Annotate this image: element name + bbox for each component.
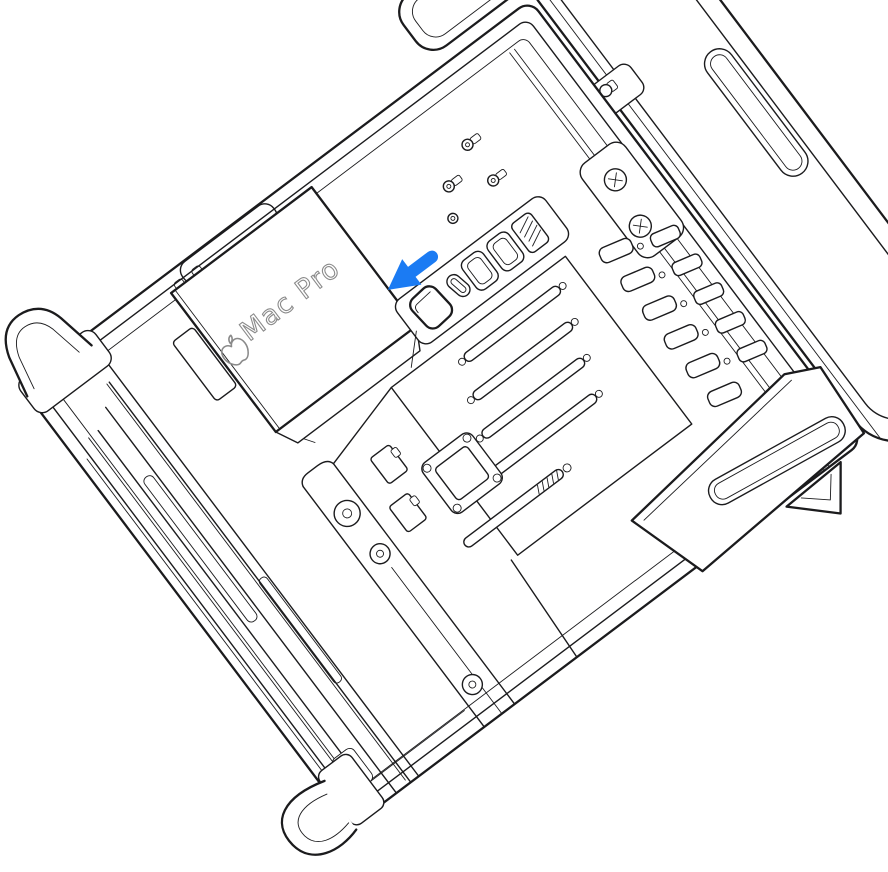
mac-pro-side-view-illustration: Mac Pro — [0, 0, 888, 872]
line-art-canvas: Mac Pro — [0, 0, 888, 872]
